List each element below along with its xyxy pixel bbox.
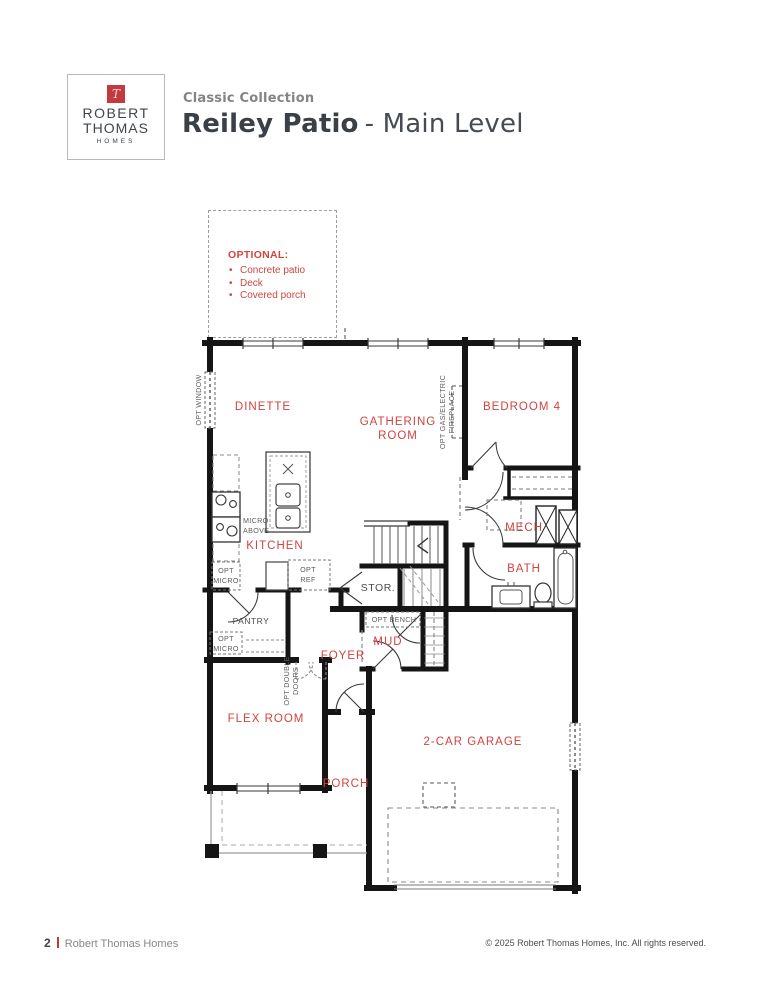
ann-opt-micro-kitchen-2: MICRO: [213, 576, 239, 585]
toilet-icon: [534, 583, 552, 608]
kitchen-island: [266, 452, 310, 532]
room-label-bedroom4: BEDROOM 4: [483, 401, 561, 413]
vanity-icon: [492, 582, 530, 608]
room-label-mech: MECH: [505, 522, 543, 534]
footer-left: 2Robert Thomas Homes: [44, 936, 178, 950]
footer-brand: Robert Thomas Homes: [65, 938, 179, 950]
range-icon: [212, 492, 240, 542]
porch-post: [205, 844, 219, 858]
footer-divider: [57, 937, 59, 948]
tub-icon: [554, 548, 576, 608]
room-label-mud: MUD: [373, 636, 402, 648]
optional-double-doors: [296, 662, 326, 679]
optional-window-hatch: [205, 372, 215, 428]
room-label-garage: 2-CAR GARAGE: [424, 736, 523, 748]
porch-slab: [205, 791, 367, 858]
room-label-flex: FLEX ROOM: [228, 713, 305, 725]
ann-opt-double-doors-2: DOORS: [291, 667, 300, 695]
ann-opt-bench: OPT BENCH: [372, 615, 417, 624]
room-label-gathering-1: GATHERING: [360, 416, 437, 428]
room-label-gathering-2: ROOM: [378, 430, 418, 442]
ann-opt-ref-2: REF: [300, 575, 316, 584]
room-label-stor: STOR.: [361, 582, 395, 594]
ann-opt-micro-kitchen-1: OPT: [218, 566, 234, 575]
optional-garage-door-hatch: [570, 723, 580, 770]
ann-micro-above-1: MICRO: [243, 516, 269, 525]
garage-features: [388, 783, 558, 889]
footer-copyright: © 2025 Robert Thomas Homes, Inc. All rig…: [485, 938, 706, 948]
ann-opt-window: OPT WINDOW: [194, 374, 203, 425]
floorplan-drawing: DINETTE GATHERING ROOM BEDROOM 4 KITCHEN…: [0, 0, 768, 994]
page-number: 2: [44, 936, 51, 950]
room-label-bath: BATH: [507, 563, 541, 575]
ann-opt-double-doors-1: OPT DOUBLE: [282, 656, 291, 705]
room-label-porch: PORCH: [323, 778, 370, 790]
ann-micro-above-2: ABOVE: [243, 526, 269, 535]
room-label-kitchen: KITCHEN: [246, 540, 303, 552]
brochure-page: T ROBERT THOMAS HOMES Classic Collection…: [0, 0, 768, 994]
room-label-dinette: DINETTE: [235, 401, 291, 413]
ann-opt-fireplace-1: OPT GAS/ELECTRIC: [438, 375, 447, 449]
porch-post: [313, 844, 327, 858]
room-label-pantry: PANTRY: [233, 616, 270, 626]
ann-opt-fireplace-2: FIREPLACE: [447, 391, 456, 434]
ann-opt-micro-pantry-1: OPT: [218, 634, 234, 643]
ann-opt-micro-pantry-2: MICRO: [213, 644, 239, 653]
room-label-foyer: FOYER: [321, 650, 366, 662]
kitchen-cabinet: [266, 562, 288, 590]
bath-fixtures: [492, 548, 576, 608]
ann-opt-ref-1: OPT: [300, 565, 316, 574]
